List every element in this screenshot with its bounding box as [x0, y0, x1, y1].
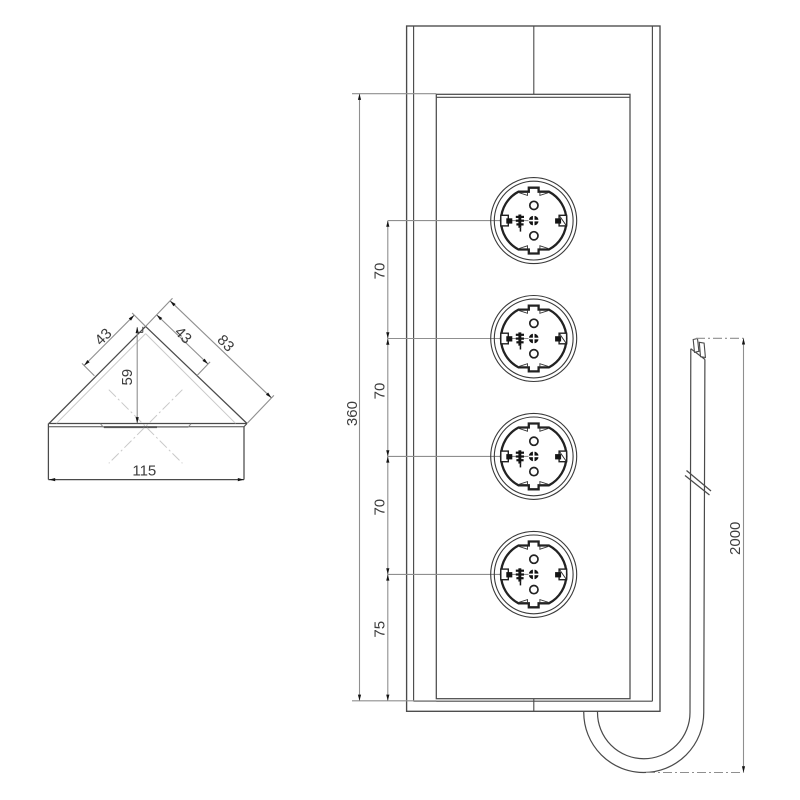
- svg-text:115: 115: [132, 462, 156, 479]
- svg-text:70: 70: [371, 263, 388, 280]
- svg-text:70: 70: [371, 499, 388, 516]
- svg-text:2000: 2000: [727, 522, 744, 555]
- svg-text:59: 59: [119, 369, 136, 386]
- svg-text:70: 70: [371, 383, 388, 400]
- svg-text:75: 75: [371, 621, 388, 638]
- svg-text:360: 360: [344, 401, 361, 426]
